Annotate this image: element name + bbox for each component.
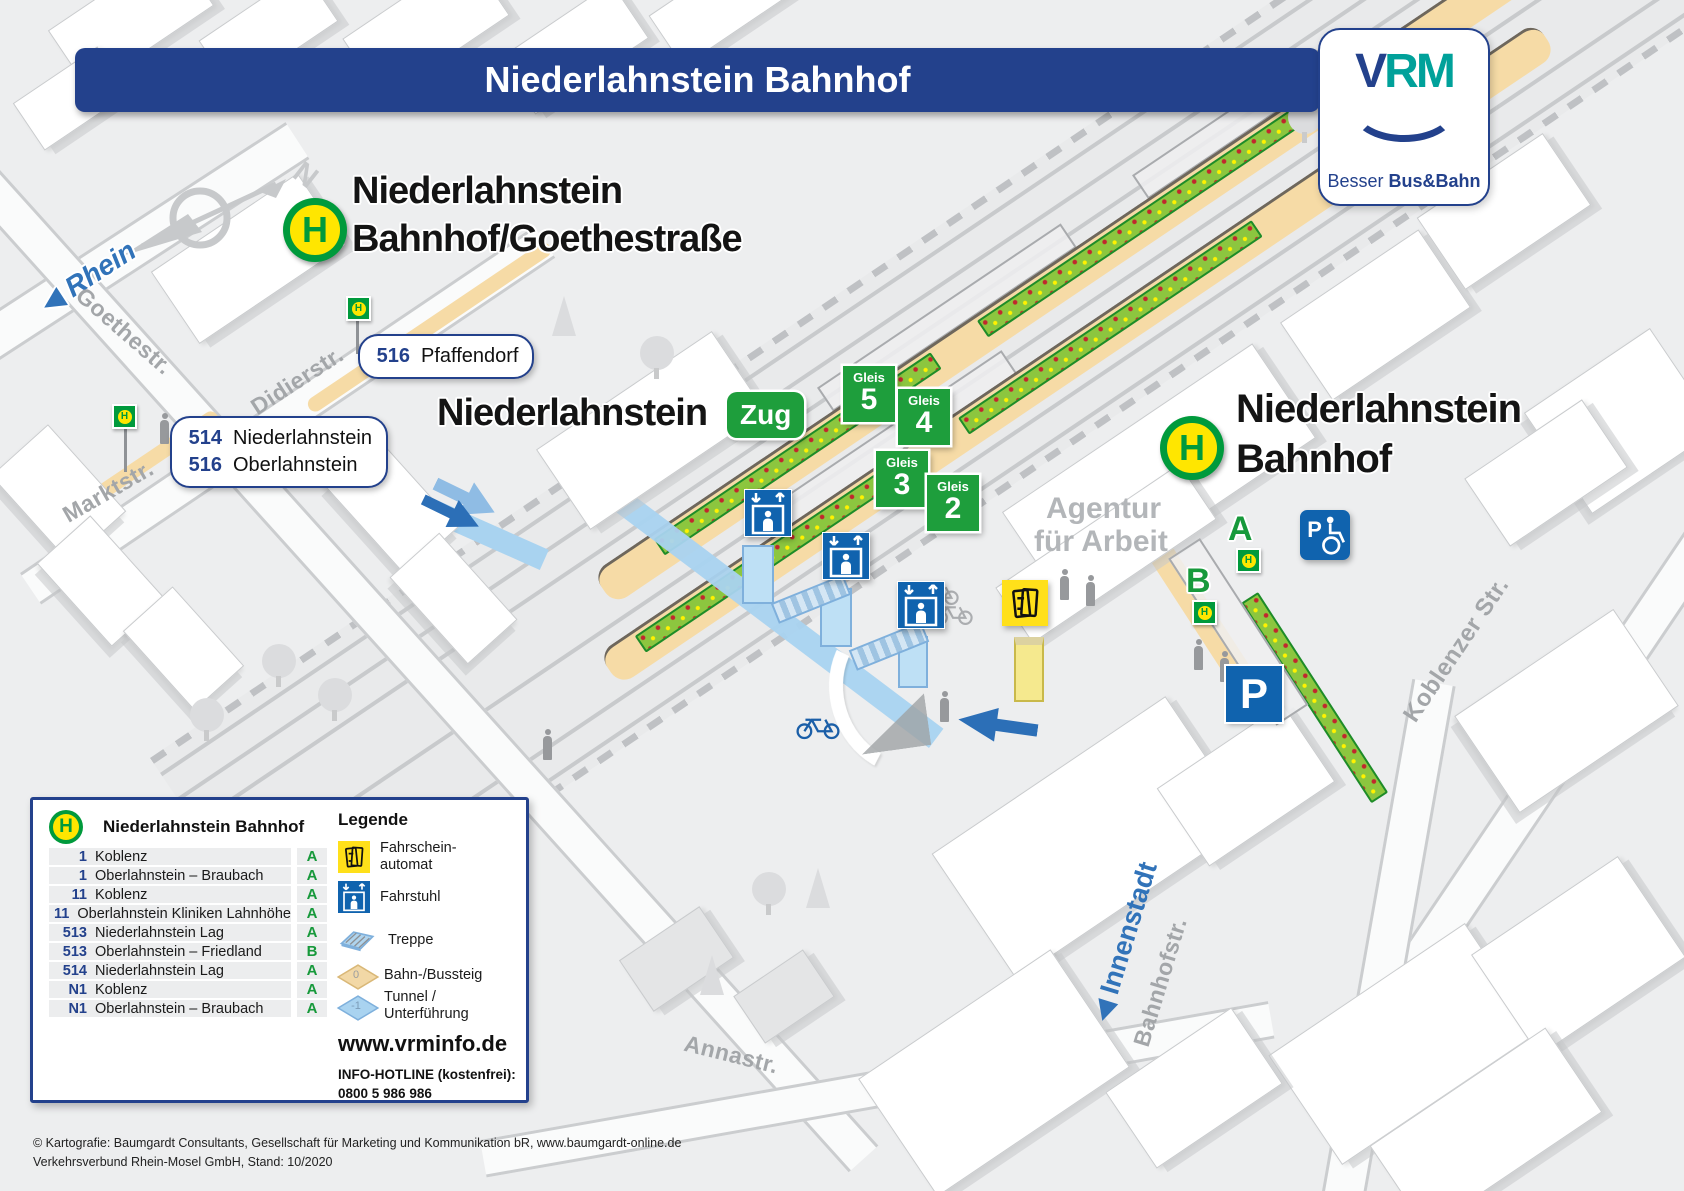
bus-stop-h-icon: H xyxy=(283,198,347,262)
bay-cell: B xyxy=(297,943,327,960)
tree-icon xyxy=(190,698,224,732)
legend-panel: H Niederlahnstein Bahnhof 1KoblenzA 1Obe… xyxy=(30,797,529,1103)
departure-row: N1KoblenzA xyxy=(49,981,327,998)
legend-stop-title: Niederlahnstein Bahnhof xyxy=(103,817,304,837)
vrm-wordmark: VRM xyxy=(1320,48,1488,96)
tunnel-diamond-icon: -1 xyxy=(338,994,374,1018)
route-box-pfaffendorf: 516 Pfaffendorf xyxy=(358,334,534,379)
person-figure xyxy=(1194,646,1203,670)
hotline-number: 0800 5 986 986 xyxy=(338,1084,523,1104)
route-row: 516 Pfaffendorf xyxy=(374,343,518,370)
accessible-parking-icon: P xyxy=(1300,510,1350,560)
stop-name-bahnhof: Niederlahnstein Bahnhof xyxy=(1236,384,1521,485)
departure-row: 1KoblenzA xyxy=(49,848,327,865)
bus-bay-b-label: B xyxy=(1186,562,1211,601)
platform-sign-gleis-4: Gleis4 xyxy=(898,389,950,445)
copyright-line-2: Verkehrsverbund Rhein-Mosel GmbH, Stand:… xyxy=(33,1153,681,1172)
legend-key: Legende Fahrschein-automat Fahrstuhl Tre… xyxy=(338,810,523,1104)
departure-row: 11Oberlahnstein Kliniken LahnhöheA xyxy=(49,905,327,922)
departure-row: 513Niederlahnstein LagA xyxy=(49,924,327,941)
bay-cell: A xyxy=(297,848,327,865)
person-figure xyxy=(1086,582,1095,606)
platform-sign-gleis-3: Gleis3 xyxy=(876,451,928,507)
hotline-info: INFO-HOTLINE (kostenfrei): 0800 5 986 98… xyxy=(338,1065,523,1104)
route-destination: Oberlahnstein xyxy=(233,452,358,479)
stop-pole xyxy=(124,426,127,472)
platform-sign-gleis-5: Gleis5 xyxy=(843,366,895,422)
bicycle-icon xyxy=(795,712,841,740)
platform-sign-gleis-2: Gleis2 xyxy=(927,475,979,531)
route-row: 514 Niederlahnstein xyxy=(186,425,372,452)
h-stop-sign-icon: H xyxy=(346,296,371,321)
legend-panel-header: H Niederlahnstein Bahnhof xyxy=(49,810,304,844)
elevator-icon xyxy=(822,532,870,580)
copyright-line-1: © Kartografie: Baumgardt Consultants, Ge… xyxy=(33,1134,681,1153)
bay-cell: A xyxy=(297,905,327,922)
person-figure xyxy=(1060,576,1069,600)
departure-table: 1KoblenzA 1Oberlahnstein – BraubachA 11K… xyxy=(49,848,327,1019)
person-figure xyxy=(940,698,949,722)
bay-cell: A xyxy=(297,1000,327,1017)
departure-row: 1Oberlahnstein – BraubachA xyxy=(49,867,327,884)
ticket-machine-3d xyxy=(1014,637,1044,702)
station-map-poster: N ◀ Rhein Goethestr. Didierstr. Marktstr… xyxy=(0,0,1684,1191)
website-link: www.vrminfo.de xyxy=(338,1031,523,1057)
departure-row: 514Niederlahnstein LagA xyxy=(49,962,327,979)
building xyxy=(858,949,1130,1191)
person-figure xyxy=(160,420,169,444)
route-number: 514 xyxy=(186,425,222,452)
elevator-icon xyxy=(897,581,945,629)
h-stop-sign-icon: H xyxy=(1192,600,1217,625)
ticket-machine-icon xyxy=(1002,580,1048,626)
copyright-note: © Kartografie: Baumgardt Consultants, Ge… xyxy=(33,1134,681,1172)
elevator-icon xyxy=(338,881,370,913)
route-number: 516 xyxy=(186,452,222,479)
bus-stop-platform xyxy=(305,240,554,415)
zug-badge: Zug xyxy=(727,392,804,438)
tree-icon xyxy=(806,868,830,908)
bus-stop-h-icon: H xyxy=(49,810,83,844)
bay-cell: A xyxy=(297,886,327,903)
page-title: Niederlahnstein Bahnhof xyxy=(75,48,1320,112)
bay-cell: A xyxy=(297,867,327,884)
tree-icon xyxy=(262,644,296,678)
legend-item-elevator: Fahrstuhl xyxy=(338,881,523,913)
route-row: 516 Oberlahnstein xyxy=(186,452,372,479)
svg-text:P: P xyxy=(1307,517,1322,542)
elevator-shaft xyxy=(742,545,774,604)
h-stop-sign-icon: H xyxy=(1236,548,1261,573)
building-label-agentur: Agentur für Arbeit xyxy=(1046,492,1168,558)
h-stop-sign-icon: H xyxy=(112,404,137,429)
legend-item-platform: 0 Bahn-/Bussteig xyxy=(338,963,523,987)
vrm-tagline: Besser Bus&Bahn xyxy=(1320,171,1488,192)
tree-icon xyxy=(700,955,724,995)
bus-stop-h-icon: H xyxy=(1160,416,1224,480)
person-figure xyxy=(543,736,552,760)
departure-row: 513Oberlahnstein – FriedlandB xyxy=(49,943,327,960)
bay-cell: A xyxy=(297,924,327,941)
stop-name-goethestrasse: Niederlahnstein Bahnhof/Goethestraße xyxy=(352,168,742,264)
compass-north-label: N xyxy=(287,156,323,195)
elevator-icon xyxy=(744,489,792,537)
ticket-machine-icon xyxy=(338,841,370,873)
tree-icon xyxy=(552,296,576,336)
route-number: 516 xyxy=(374,343,410,370)
legend-item-tunnel: -1 Tunnel /Unterführung xyxy=(338,989,523,1022)
departure-row: N1Oberlahnstein – BraubachA xyxy=(49,1000,327,1017)
tree-icon xyxy=(318,678,352,712)
stop-name-zug: Niederlahnstein xyxy=(437,390,707,438)
parking-icon: P xyxy=(1226,666,1282,722)
bus-bay-a-label: A xyxy=(1228,510,1253,549)
route-destination: Niederlahnstein xyxy=(233,425,372,452)
platform-diamond-icon: 0 xyxy=(338,963,374,987)
vrm-logo: VRM Besser Bus&Bahn xyxy=(1318,28,1490,206)
tree-icon xyxy=(752,872,786,906)
route-box-lahnstein: 514 Niederlahnstein 516 Oberlahnstein xyxy=(170,416,388,488)
stairs-icon xyxy=(338,927,378,953)
tree-icon xyxy=(640,336,674,370)
hotline-label: INFO-HOTLINE (kostenfrei): xyxy=(338,1065,523,1085)
legend-item-ticket: Fahrschein-automat xyxy=(338,840,523,873)
departure-row: 11KoblenzA xyxy=(49,886,327,903)
legend-item-stairs: Treppe xyxy=(338,927,523,953)
legend-title: Legende xyxy=(338,810,523,830)
route-destination: Pfaffendorf xyxy=(421,343,518,370)
bay-cell: A xyxy=(297,962,327,979)
bay-cell: A xyxy=(297,981,327,998)
